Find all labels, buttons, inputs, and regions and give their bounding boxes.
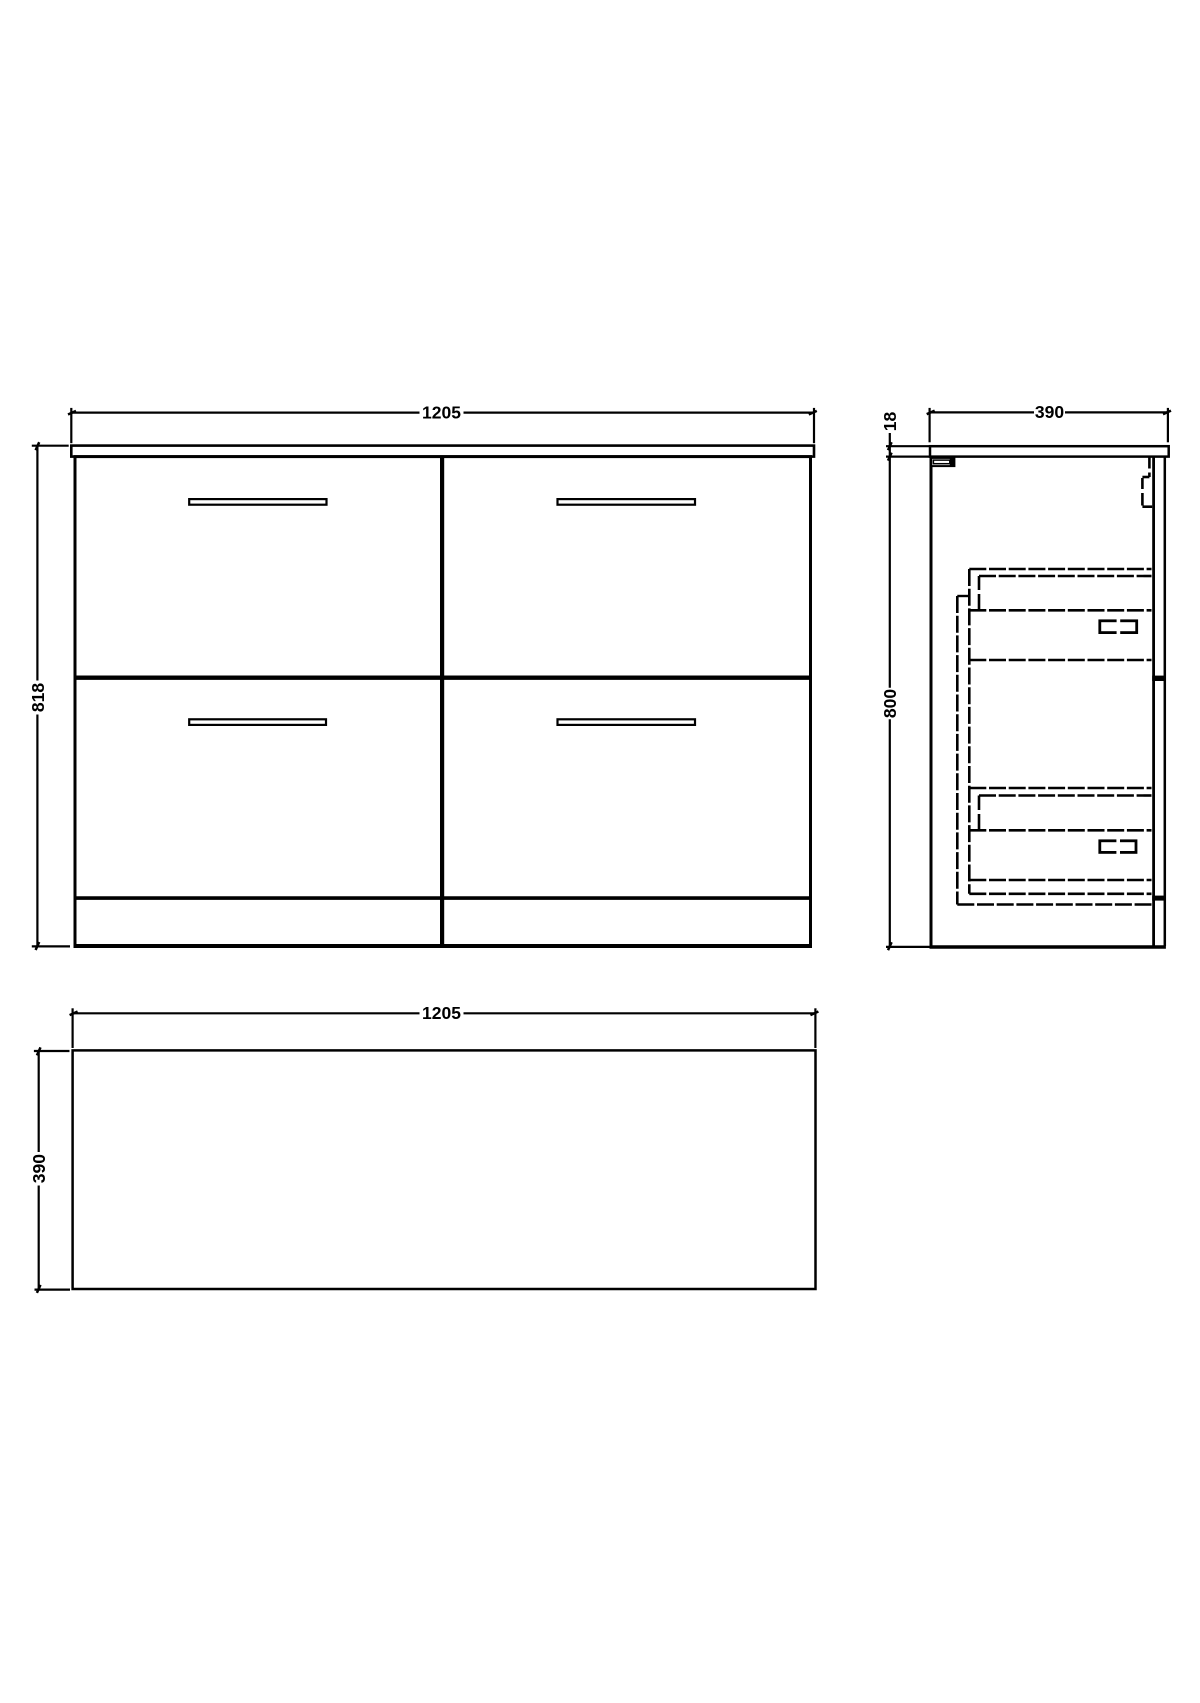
svg-text:818: 818: [28, 683, 48, 712]
svg-text:1205: 1205: [422, 402, 461, 422]
svg-text:800: 800: [880, 689, 900, 718]
svg-text:18: 18: [880, 412, 900, 432]
svg-text:390: 390: [29, 1154, 49, 1183]
svg-text:390: 390: [1035, 402, 1064, 422]
svg-text:1205: 1205: [422, 1003, 461, 1023]
